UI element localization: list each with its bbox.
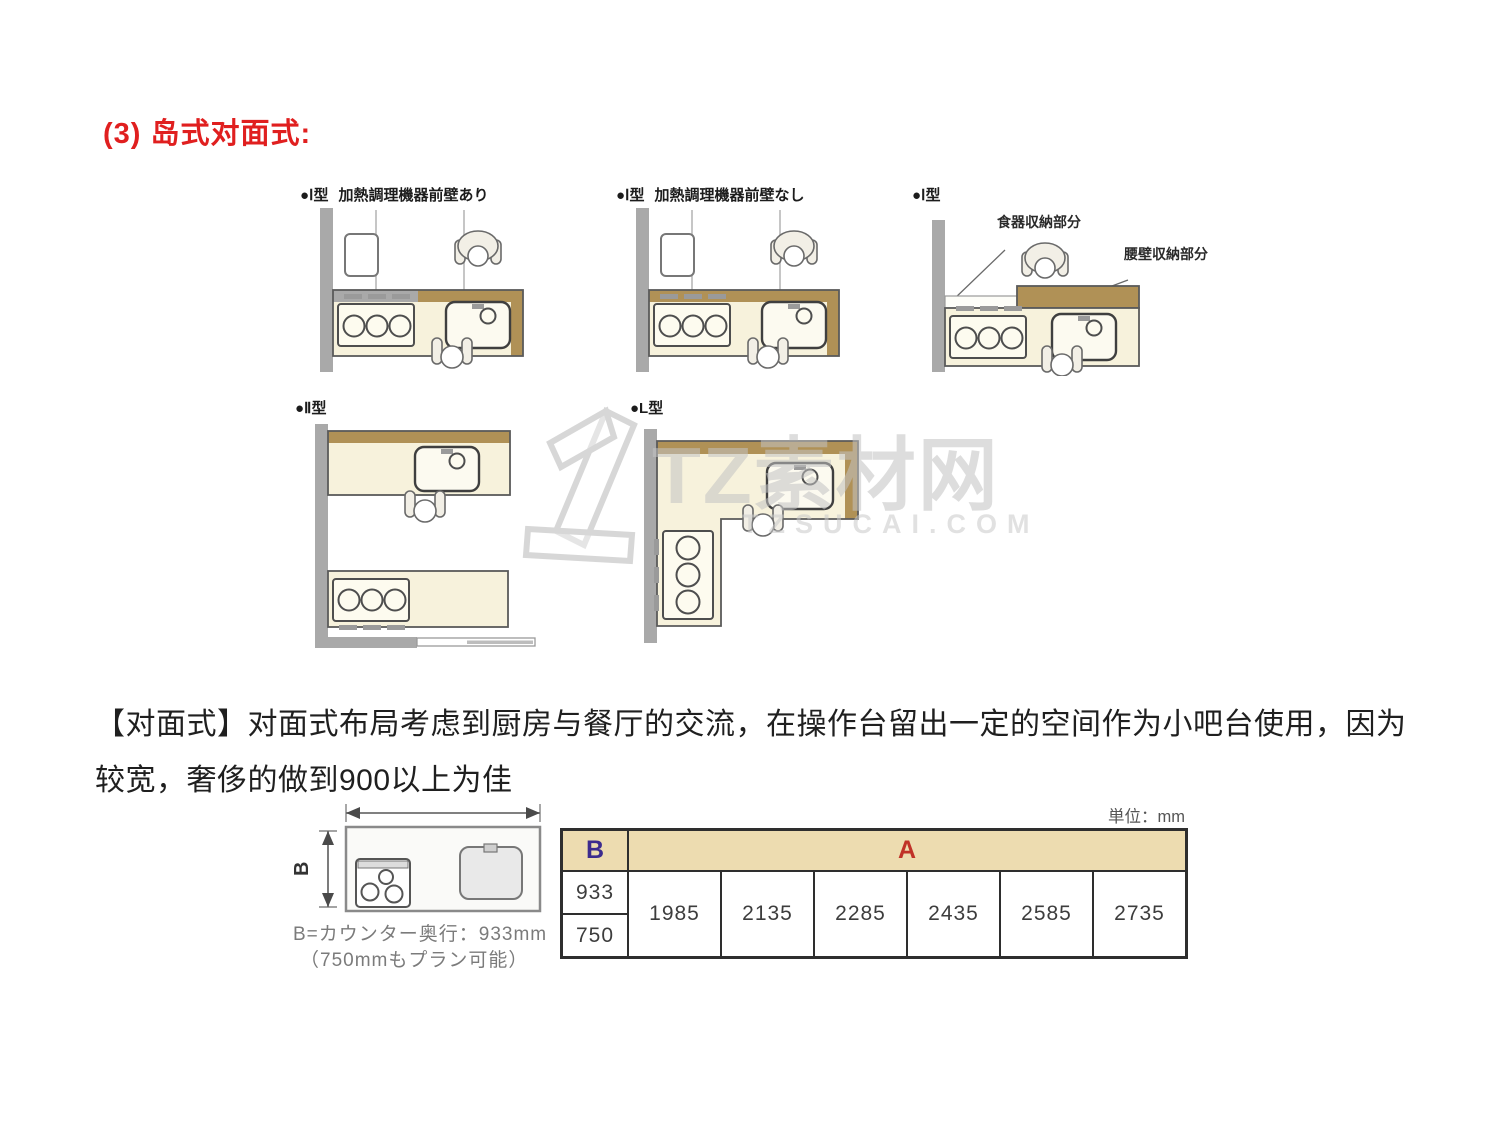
diagram-5-type: ●L型 xyxy=(630,400,663,417)
seated-person-icon xyxy=(455,231,501,266)
door-sill xyxy=(467,641,533,645)
sink-icon xyxy=(762,302,826,348)
waist-wall xyxy=(1017,286,1139,308)
table-cell-a-4: 2435 xyxy=(907,871,1000,957)
kitchen-plan-2-svg xyxy=(616,206,856,376)
size-table: B A 933 750 1985 2135 2285 2435 2585 273… xyxy=(560,828,1188,959)
document-page: (3) 岛式对面式: ●Ⅰ型加熱調理機器前壁あり xyxy=(0,0,1500,1125)
annotation-waist-wall-storage: 腰壁収納部分 xyxy=(1124,244,1208,264)
diagram-1-label: ●Ⅰ型加熱調理機器前壁あり xyxy=(300,184,600,206)
annotation-dish-storage: 食器収納部分 xyxy=(997,212,1081,232)
diagram-4-label: ●Ⅱ型 xyxy=(295,397,555,419)
table-cell-b-750: 750 xyxy=(562,914,628,957)
cooktop-vertical-icon xyxy=(654,531,713,619)
counter-bar xyxy=(328,431,510,443)
counter-bar-side xyxy=(511,290,523,356)
counter-caption-line-1: B=カウンター奥行：933mm xyxy=(293,919,547,946)
diagram-3-type: ●Ⅰ型 xyxy=(912,187,940,204)
seated-person-icon xyxy=(1022,243,1068,278)
sink-icon xyxy=(446,302,510,348)
diagram-2-subtitle: 加熱調理機器前壁なし xyxy=(654,187,804,204)
counter-dimension-diagram: B B=カウンター奥行：933mm （750mmもプラン可能） xyxy=(288,793,568,983)
table-header-a: A xyxy=(628,830,1186,871)
wall xyxy=(315,424,328,648)
table-cell-b-933: 933 xyxy=(562,871,628,914)
sink-icon xyxy=(1052,314,1116,360)
cooktop-icon xyxy=(356,859,410,907)
counter-bar xyxy=(418,290,523,302)
kitchen-diagram-2: ●Ⅰ型加熱調理機器前壁なし xyxy=(616,184,916,376)
kitchen-plan-4-svg xyxy=(295,419,545,659)
arrowhead-left xyxy=(346,807,360,819)
counter-bar-side xyxy=(845,441,858,519)
arrowhead-down xyxy=(322,893,334,907)
sink-icon xyxy=(415,447,479,491)
b-dimension-label: B xyxy=(291,862,313,876)
diagram-2-type: ●Ⅰ型 xyxy=(616,187,644,204)
arrowhead-up xyxy=(322,831,334,845)
counter-bar-top xyxy=(657,441,858,454)
arrowhead-right xyxy=(526,807,540,819)
table-cell-a-5: 2585 xyxy=(1000,871,1093,957)
seated-person-icon xyxy=(771,231,817,266)
wall xyxy=(932,220,945,372)
sink-icon xyxy=(460,844,522,899)
counter-bar-side xyxy=(827,290,839,356)
diagram-1-type: ●Ⅰ型 xyxy=(300,187,328,204)
a-dimension-arrow xyxy=(346,804,540,822)
fridge-icon xyxy=(661,234,694,276)
diagram-5-label: ●L型 xyxy=(630,397,890,419)
kitchen-plan-5-svg xyxy=(630,419,880,659)
kitchen-diagram-3: ●Ⅰ型 食器収納部分 腰壁収納部分 xyxy=(912,184,1247,376)
leader-line xyxy=(952,250,1005,301)
kitchen-diagram-1: ●Ⅰ型加熱調理機器前壁あり xyxy=(300,184,600,376)
table-cell-a-3: 2285 xyxy=(814,871,907,957)
kitchen-diagram-4: ●Ⅱ型 xyxy=(295,397,555,659)
wall xyxy=(320,208,333,372)
page-title: (3) 岛式对面式: xyxy=(103,110,311,152)
wall xyxy=(636,208,649,372)
fridge-icon xyxy=(345,234,378,276)
paragraph-line-1: 【对面式】对面式布局考虑到厨房与餐厅的交流，在操作台留出一定的空间作为小吧台使用… xyxy=(95,699,1407,743)
diagram-4-type: ●Ⅱ型 xyxy=(295,400,326,417)
diagram-3-label: ●Ⅰ型 xyxy=(912,184,1247,206)
wall-bottom xyxy=(315,637,417,648)
table-cell-a-1: 1985 xyxy=(628,871,721,957)
sink-icon xyxy=(767,463,833,509)
kitchen-plan-1-svg xyxy=(300,206,540,376)
counter-diagram-svg: B xyxy=(288,793,563,921)
table-header-b: B xyxy=(562,830,628,871)
table-cell-a-2: 2135 xyxy=(721,871,814,957)
counter-caption-line-2: （750mmもプラン可能） xyxy=(300,945,528,972)
diagram-1-subtitle: 加熱調理機器前壁あり xyxy=(338,187,488,204)
table-cell-a-6: 2735 xyxy=(1093,871,1186,957)
kitchen-diagram-5: ●L型 xyxy=(630,397,890,659)
diagram-2-label: ●Ⅰ型加熱調理機器前壁なし xyxy=(616,184,916,206)
unit-label: 単位：mm xyxy=(1058,803,1185,827)
